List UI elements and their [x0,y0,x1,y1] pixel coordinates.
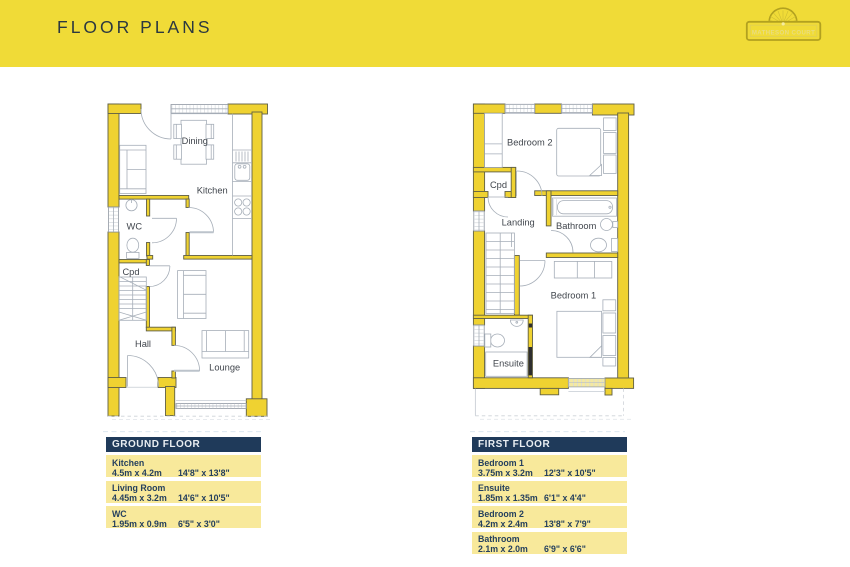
svg-text:Lounge: Lounge [209,363,240,373]
svg-text:Hall: Hall [135,339,151,349]
svg-text:Bathroom: Bathroom [556,221,597,231]
svg-text:Bedroom 2: Bedroom 2 [507,138,552,148]
svg-text:Ensuite: Ensuite [493,359,524,369]
svg-text:Cpd: Cpd [490,180,507,190]
svg-text:WC: WC [127,221,143,231]
svg-text:Dining: Dining [182,136,208,146]
svg-text:Kitchen: Kitchen [197,186,228,196]
svg-text:Landing: Landing [502,218,535,228]
svg-text:Bedroom 1: Bedroom 1 [551,291,596,301]
svg-text:Cpd: Cpd [122,267,139,277]
